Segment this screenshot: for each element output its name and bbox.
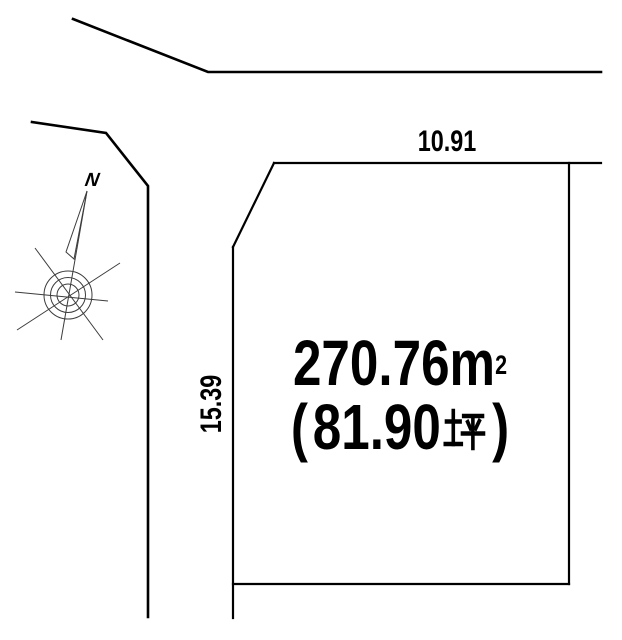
area-m2-value: 270.76m <box>293 327 495 399</box>
compass-circle-middle <box>51 278 86 313</box>
area-tsubo-value: 81.90 <box>313 391 441 463</box>
land-plot-diagram: N 10.91 15.39 270.76m2 (81.90 ) <box>0 0 622 640</box>
tsubo-kanji-icon <box>442 403 485 453</box>
compass-rose <box>15 191 120 340</box>
area-label: 270.76m2 (81.90 ) <box>286 338 514 453</box>
tsubo-open-paren: ( <box>291 402 308 453</box>
road-lines <box>32 19 601 617</box>
plot-drawing <box>0 0 622 640</box>
compass-circle-outer <box>44 271 92 319</box>
tsubo-close-paren: ) <box>492 402 509 453</box>
dimension-top-label: 10.91 <box>418 125 477 159</box>
area-m2-superscript: 2 <box>495 350 507 380</box>
plot-edge-chamfer <box>233 163 274 247</box>
compass-spoke <box>15 292 108 301</box>
dimension-left-label: 15.39 <box>195 375 229 434</box>
road-edge-left <box>32 122 148 617</box>
road-edge-top <box>73 19 601 72</box>
area-tsubo: (81.90 ) <box>286 402 514 453</box>
